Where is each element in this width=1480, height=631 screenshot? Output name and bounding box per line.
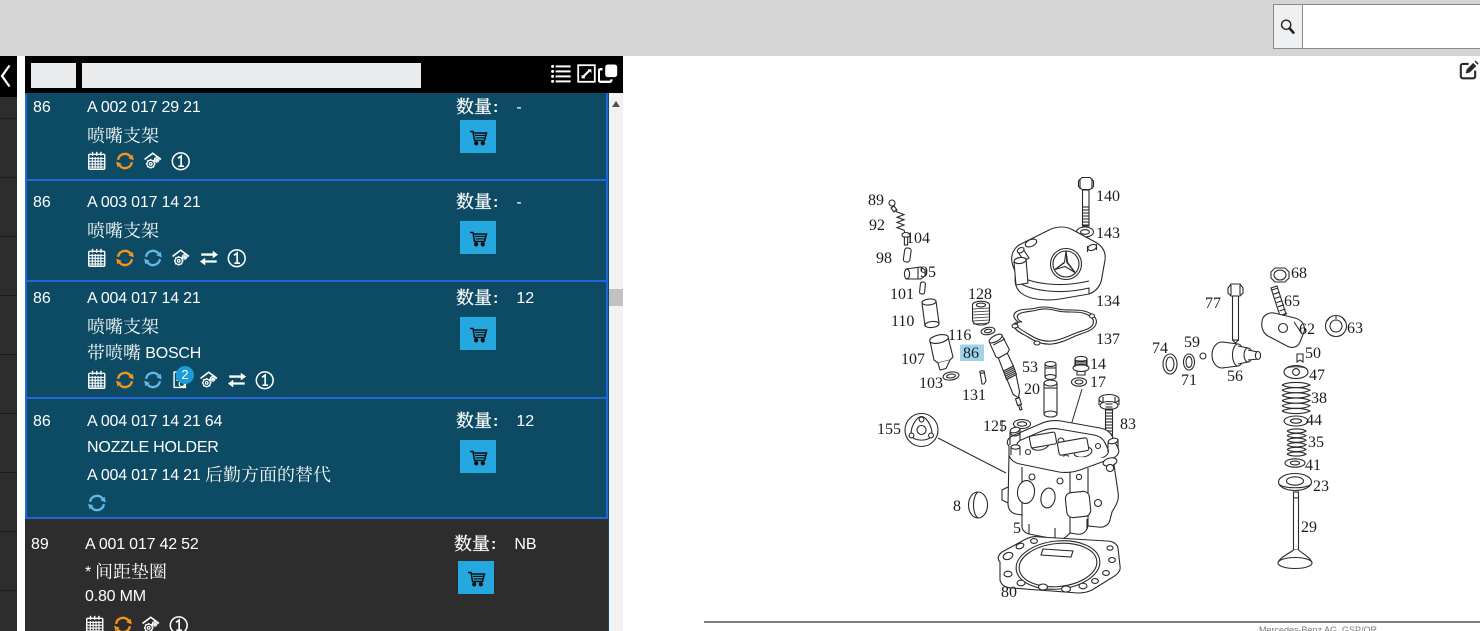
svg-text:80: 80 xyxy=(1001,584,1017,601)
svg-text:74: 74 xyxy=(1152,340,1168,357)
svg-text:68: 68 xyxy=(1291,265,1307,282)
svg-text:140: 140 xyxy=(1096,188,1120,205)
svg-text:23: 23 xyxy=(1313,478,1329,495)
svg-text:89: 89 xyxy=(868,192,884,209)
svg-text:101: 101 xyxy=(890,286,914,303)
svg-text:143: 143 xyxy=(1096,225,1120,242)
svg-text:38: 38 xyxy=(1311,390,1327,407)
svg-text:92: 92 xyxy=(869,217,885,234)
svg-text:131: 131 xyxy=(962,387,986,404)
svg-text:125: 125 xyxy=(983,418,1007,435)
svg-text:Mercedes-Benz AG, GSP/OR: Mercedes-Benz AG, GSP/OR xyxy=(1259,625,1378,631)
svg-text:110: 110 xyxy=(891,313,914,330)
svg-text:71: 71 xyxy=(1181,372,1197,389)
svg-text:44: 44 xyxy=(1306,412,1322,429)
svg-text:5: 5 xyxy=(1013,520,1021,537)
svg-text:50: 50 xyxy=(1305,345,1321,362)
svg-text:62: 62 xyxy=(1299,321,1315,338)
svg-text:103: 103 xyxy=(919,375,943,392)
svg-text:59: 59 xyxy=(1184,334,1200,351)
svg-text:95: 95 xyxy=(920,264,936,281)
svg-text:56: 56 xyxy=(1227,368,1243,385)
svg-text:155: 155 xyxy=(877,421,901,438)
svg-text:104: 104 xyxy=(906,230,930,247)
svg-text:77: 77 xyxy=(1205,295,1221,312)
svg-text:137: 137 xyxy=(1096,331,1120,348)
svg-text:63: 63 xyxy=(1347,320,1363,337)
svg-text:128: 128 xyxy=(968,286,992,303)
svg-text:17: 17 xyxy=(1090,374,1106,391)
svg-text:107: 107 xyxy=(901,351,925,368)
svg-text:134: 134 xyxy=(1096,293,1120,310)
svg-text:8: 8 xyxy=(953,498,961,515)
svg-text:20: 20 xyxy=(1024,381,1040,398)
svg-text:116: 116 xyxy=(948,327,971,344)
svg-text:47: 47 xyxy=(1309,367,1325,384)
svg-text:53: 53 xyxy=(1022,359,1038,376)
svg-text:41: 41 xyxy=(1305,457,1321,474)
svg-text:83: 83 xyxy=(1120,416,1136,433)
svg-text:98: 98 xyxy=(876,250,892,267)
svg-text:86: 86 xyxy=(963,345,979,362)
svg-text:65: 65 xyxy=(1284,293,1300,310)
svg-text:14: 14 xyxy=(1090,356,1106,373)
svg-text:29: 29 xyxy=(1301,519,1317,536)
svg-text:35: 35 xyxy=(1308,434,1324,451)
